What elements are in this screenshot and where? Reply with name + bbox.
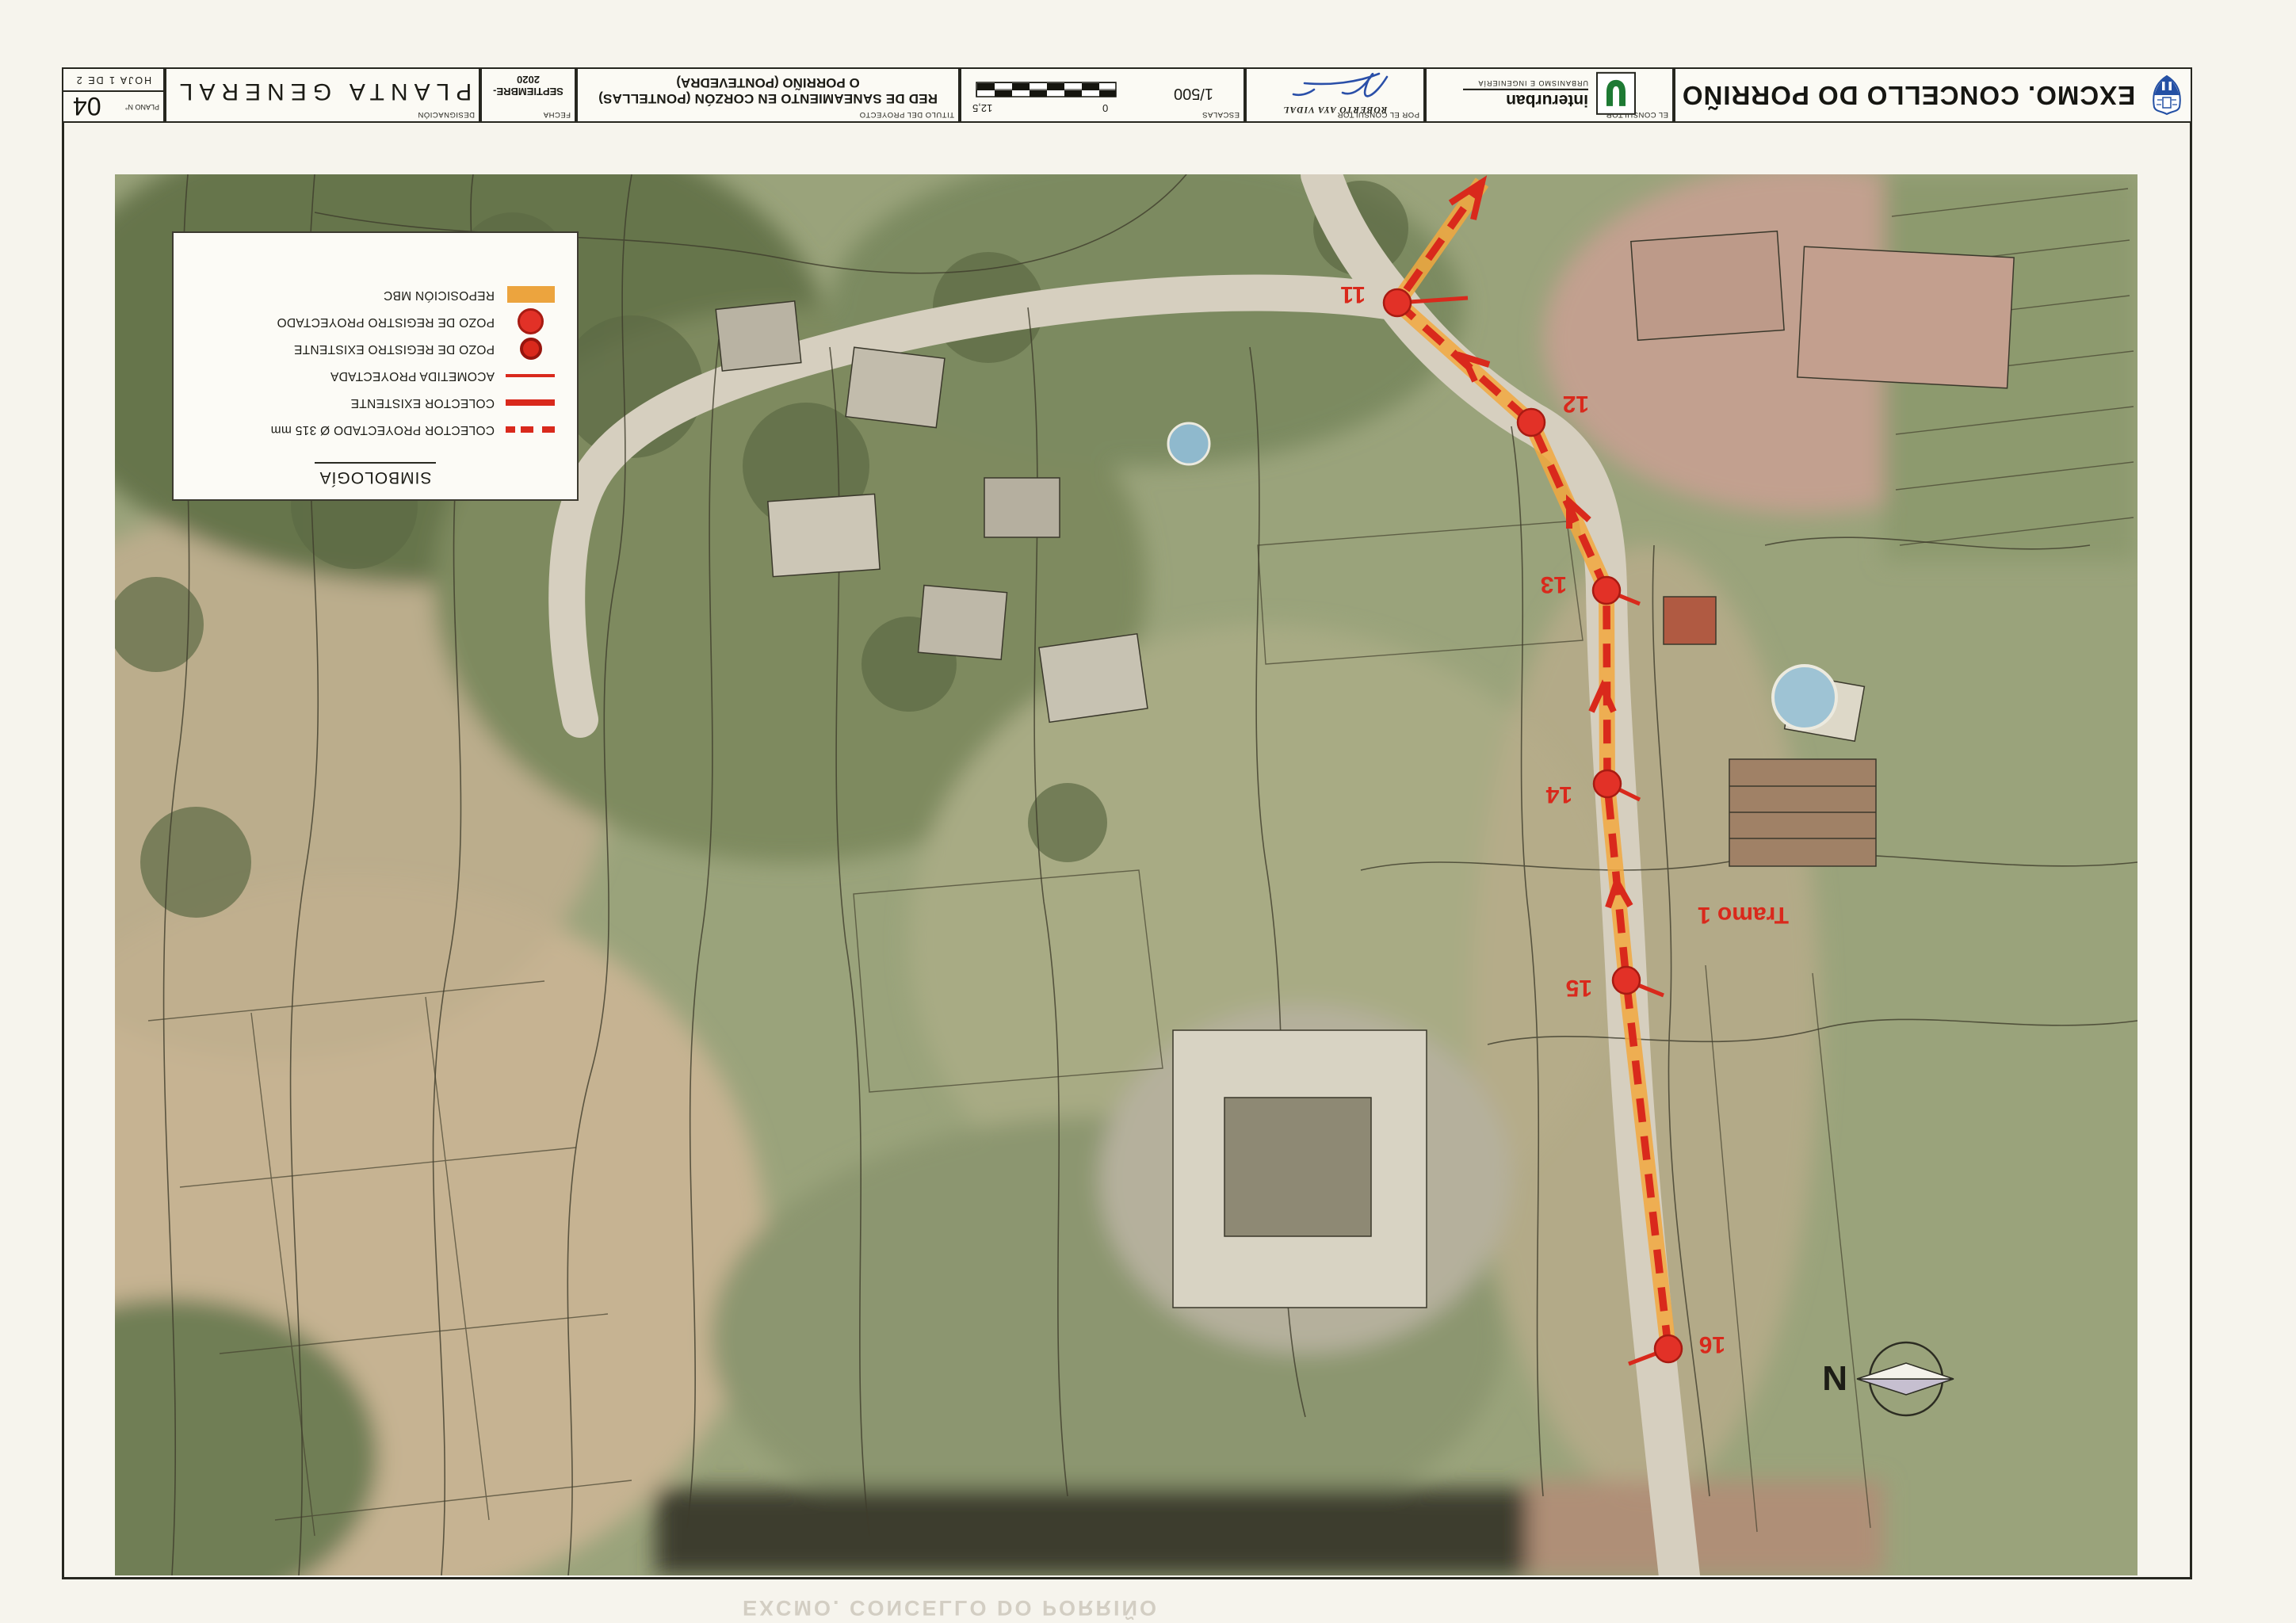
plan-sheet: EXCMO. CONCELLO DO PORRIÑO <box>0 0 2296 1623</box>
legend-item: POZO DE REGISTRO PROYECTADO <box>174 308 577 335</box>
organization-name: EXCMO. CONCELLO DO PORRIÑO <box>1682 80 2135 110</box>
legend-item: COLECTOR EXISTENTE <box>174 389 577 416</box>
manhole-label: 11 <box>1340 281 1366 307</box>
scale-bar <box>976 82 1117 97</box>
consultor-brand: interurban <box>1506 92 1588 108</box>
titleblock-plano: PLANO N° 04 HOJA 1 DE 2 <box>62 67 165 123</box>
existing-collector-symbol <box>495 399 555 406</box>
existing-manhole-symbol <box>495 338 555 360</box>
legend-box: SIMBOLOGÍA COLECTOR PROYECTADO Ø 315 mm … <box>172 231 579 501</box>
hoja-label: HOJA 1 DE 2 <box>63 74 163 86</box>
titleblock-signature: POR EL CONSULTOR ROBERTO AYA VIDAL <box>1245 67 1425 123</box>
scanned-plan-page: EXCMO. CONCELLO DO PORRIÑO <box>0 0 2296 1623</box>
titleblock-organization: EXCMO. CONCELLO DO PORRIÑO <box>1674 67 2192 123</box>
titleblock-proyecto: TITULO DEL PROYECTO RED DE SANEAMIENTO E… <box>576 67 960 123</box>
escalas-label: ESCALAS <box>1202 110 1240 119</box>
signature-icon <box>1274 67 1393 109</box>
porrino-shield-icon <box>2149 74 2184 116</box>
pool <box>1773 666 1836 729</box>
titleblock-escalas: ESCALAS 1/500 0 12,5 <box>960 67 1245 123</box>
legend-title: SIMBOLOGÍA <box>315 462 437 487</box>
designacion-value: PLANTA GENERAL <box>166 78 479 105</box>
project-title-line1: RED DE SANEAMIENTO EN CORZÓN (PONTELLAS) <box>578 90 958 106</box>
plano-number: 04 <box>73 91 101 120</box>
pool <box>1168 423 1209 464</box>
legend-item: REPOSICIÓN MBC <box>174 281 577 308</box>
titleblock-consultor: EL CONSULTOR interurban URBANISMO E INGE… <box>1425 67 1674 123</box>
divider <box>1463 89 1588 90</box>
dashed-collector-symbol <box>495 426 555 433</box>
map-area: 11 12 13 14 15 16 Tramo 1 N SI <box>115 174 2137 1575</box>
designacion-label: DESIGNACIÓN <box>418 110 475 119</box>
acometida-symbol <box>495 374 555 378</box>
mbc-symbol <box>495 287 555 304</box>
manhole-label: 12 <box>1563 391 1589 417</box>
ghost-showthrough-text: EXCMO. CONCELLO DO PORRIÑO <box>743 1595 1456 1620</box>
legend-item: ACOMETIDA PROYECTADA <box>174 362 577 389</box>
consultor-tagline: URBANISMO E INGENIERÍA <box>1477 79 1588 87</box>
manhole-label: 13 <box>1541 571 1567 598</box>
project-title-line2: O PORRIÑO (PONTEVEDRA) <box>578 74 958 90</box>
manhole-label: 15 <box>1566 975 1592 1001</box>
titleblock-designacion: DESIGNACIÓN PLANTA GENERAL <box>165 67 480 123</box>
scale-value: 1/500 <box>1174 84 1213 102</box>
projected-manhole-symbol <box>495 309 555 335</box>
titleblock-fecha: FECHA SEPTIEMBRE-2020 <box>480 67 576 123</box>
fecha-value: SEPTIEMBRE-2020 <box>482 74 575 97</box>
legend-item: POZO DE REGISTRO EXISTENTE <box>174 335 577 362</box>
manhole-label: 14 <box>1545 781 1572 808</box>
legend-item: COLECTOR PROYECTADO Ø 315 mm <box>174 416 577 443</box>
plano-label: PLANO N° <box>125 103 159 111</box>
proyecto-label: TITULO DEL PROYECTO <box>859 110 954 119</box>
fecha-label: FECHA <box>543 110 571 119</box>
scalebar-zero: 0 <box>1102 102 1108 114</box>
tramo-label: Tramo 1 <box>1698 902 1789 928</box>
scalebar-max: 12,5 <box>972 102 992 114</box>
manhole-label: 16 <box>1699 1331 1725 1358</box>
interurban-logo-icon <box>1596 72 1636 115</box>
north-label: N <box>1822 1358 1847 1397</box>
